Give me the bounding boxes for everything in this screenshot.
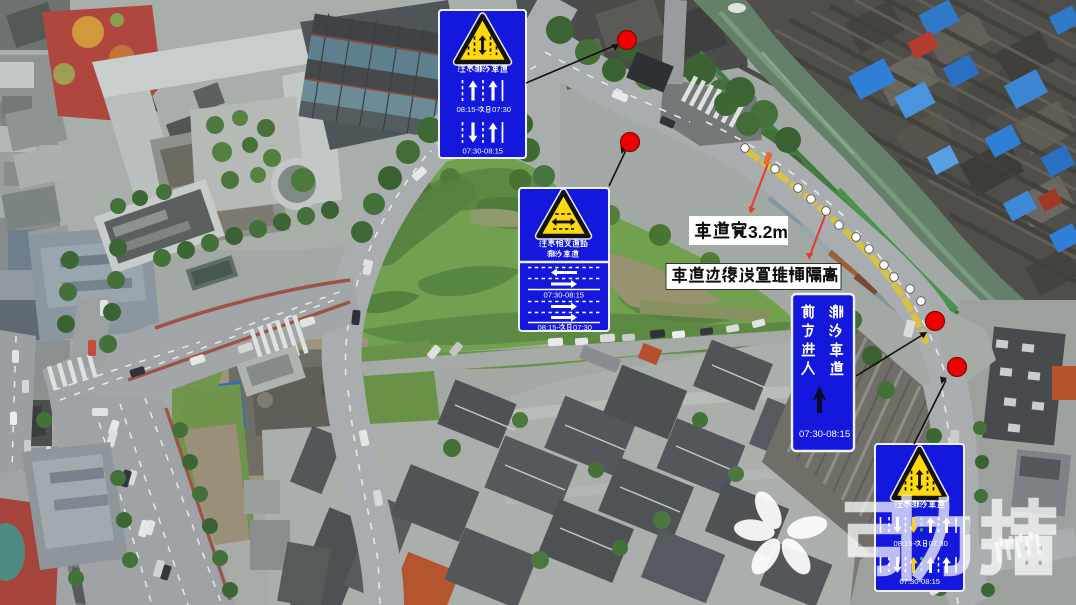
svg-text:07:30-08:15: 07:30-08:15	[799, 429, 850, 440]
svg-text:3.2m: 3.2m	[748, 222, 788, 242]
svg-text:07:30: 07:30	[492, 105, 511, 114]
svg-text:07:30: 07:30	[573, 323, 592, 332]
svg-text:08:15-: 08:15-	[457, 105, 479, 114]
svg-text:07:30-08:15: 07:30-08:15	[544, 291, 585, 300]
svg-text:07:30-08:15: 07:30-08:15	[463, 146, 504, 155]
svg-text:08:15-: 08:15-	[538, 323, 560, 332]
